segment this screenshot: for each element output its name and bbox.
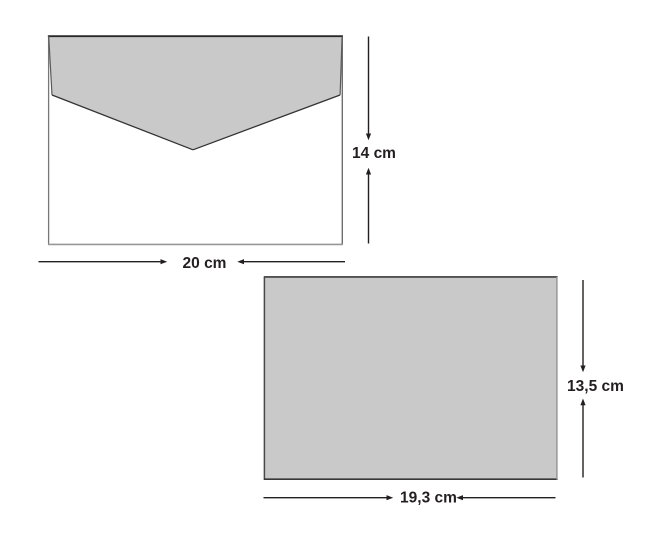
svg-text:19,3 cm: 19,3 cm: [400, 490, 457, 507]
svg-text:13,5 cm: 13,5 cm: [567, 378, 624, 395]
svg-text:14 cm: 14 cm: [352, 145, 396, 162]
svg-text:20 cm: 20 cm: [183, 255, 227, 272]
